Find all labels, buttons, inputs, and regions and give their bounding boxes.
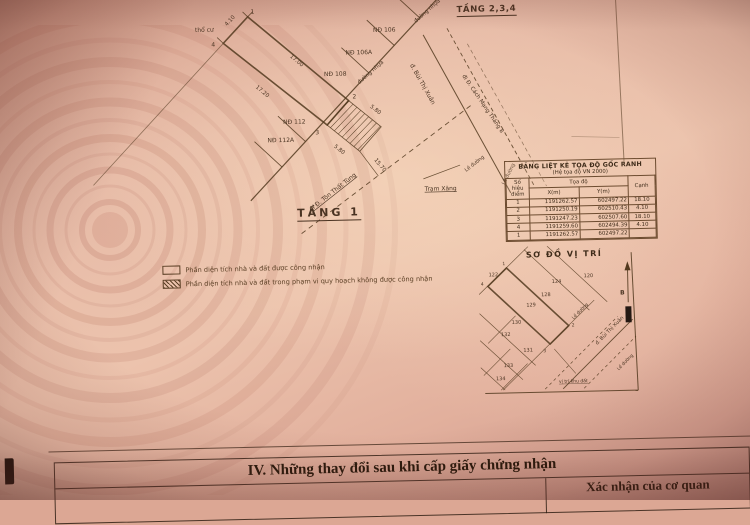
street-label: đi Đ. Cách Mạng Tháng 8 [460,73,505,135]
map-parcel-number: 134 [496,376,506,382]
boundary-extension-line [90,43,226,185]
dimension-label: 17.00 [288,54,304,69]
map-corner-label: 1 [502,261,505,267]
fold-line [615,0,624,162]
map-street-label: đ. Bùi Thị Xuân [594,314,626,346]
north-arrow [627,266,628,302]
gas-station-label: Trạm Xăng [424,185,457,193]
coordinate-table: BẢNG LIỆT KÊ TỌA ĐỘ GỐC RANH (Hệ tọa độ … [504,158,658,242]
map-corner-label: 2 [572,322,575,328]
map-corner-label: 4 [481,282,484,288]
point-label: 4 [211,42,215,49]
map-parcel-number: 131 [523,347,533,353]
floor-234-label: TẦNG 2,3,4 [456,4,516,17]
dimension-label: 17.20 [254,85,270,100]
legend-swatch-hatched [163,279,181,288]
land-type-label: thổ cư [195,27,215,34]
map-parcel-number: 129 [526,302,536,308]
map-parcel-number: 122 [489,272,499,278]
scale-bar [625,306,631,322]
point-label: 3 [315,129,319,136]
map-parcel-number: 130 [512,320,522,326]
neighbor-label: NĐ 108 [324,71,347,79]
cell-x: 1191262.57 [530,230,580,239]
neighbor-label: NĐ 112 [283,119,306,127]
col-header-point: Số hiệu điểm [506,178,529,199]
floor-1-label: TẦNG 1 [297,205,361,221]
sidewalk-label: Lề đường [463,153,486,174]
dimension-label: 4.10 [224,14,237,27]
neighbor-label: NĐ 112A [267,137,295,145]
legend-swatch-plain [162,265,180,274]
cell-y: 602497.22 [580,229,630,238]
map-parcel-number: 128 [541,292,551,298]
road-surface-label: đường nhựa [413,0,442,25]
map-sidewalk-label: Lề đường [615,351,635,372]
section-iv-box: IV. Những thay đổi sau khi cấp giấy chứn… [54,447,750,525]
neighbor-label: NĐ 106 [373,26,396,34]
north-arrow-head [624,261,630,270]
confirm-header: Xác nhận của cơ quan [546,476,749,497]
legend-label: Phần diện tích nhà và đất trong phạm vi … [186,274,433,288]
legend-label: Phần diện tích nhà và đất được công nhận [185,263,325,274]
cell-edge [629,229,656,238]
street-line [246,0,447,201]
north-label: B [620,289,625,296]
legend-item-not-recognized: Phần diện tích nhà và đất trong phạm vi … [163,274,433,289]
location-map: B 122 124 120 128 129 130 132 131 133 13… [478,243,671,399]
dimension-label: 5.80 [369,104,383,117]
road-surface-label: đường nhựa [356,59,385,86]
map-parcel-number: 124 [552,279,562,285]
map-parcel-number: 120 [584,273,594,279]
document-content: thổ cư 1 4 2 3 4.10 17.00 17.20 5.80 5.8… [0,0,750,508]
binder-tab [5,458,15,484]
map-parcel-number: 133 [504,363,514,369]
neighbor-label: NĐ 106A [345,49,373,57]
map-parcel-number: 132 [501,332,511,338]
map-corner-label: 3 [543,348,546,354]
point-label: 1 [250,9,254,16]
point-label: 2 [352,93,356,100]
cell-point: 1 [507,231,530,240]
col-header-edge: Cạnh [628,175,655,196]
dimension-label: 5.80 [332,144,346,157]
map-sidewalk-label: Lề đường [569,300,589,321]
street-label: đ. Bùi Thị Xuân [408,63,436,106]
